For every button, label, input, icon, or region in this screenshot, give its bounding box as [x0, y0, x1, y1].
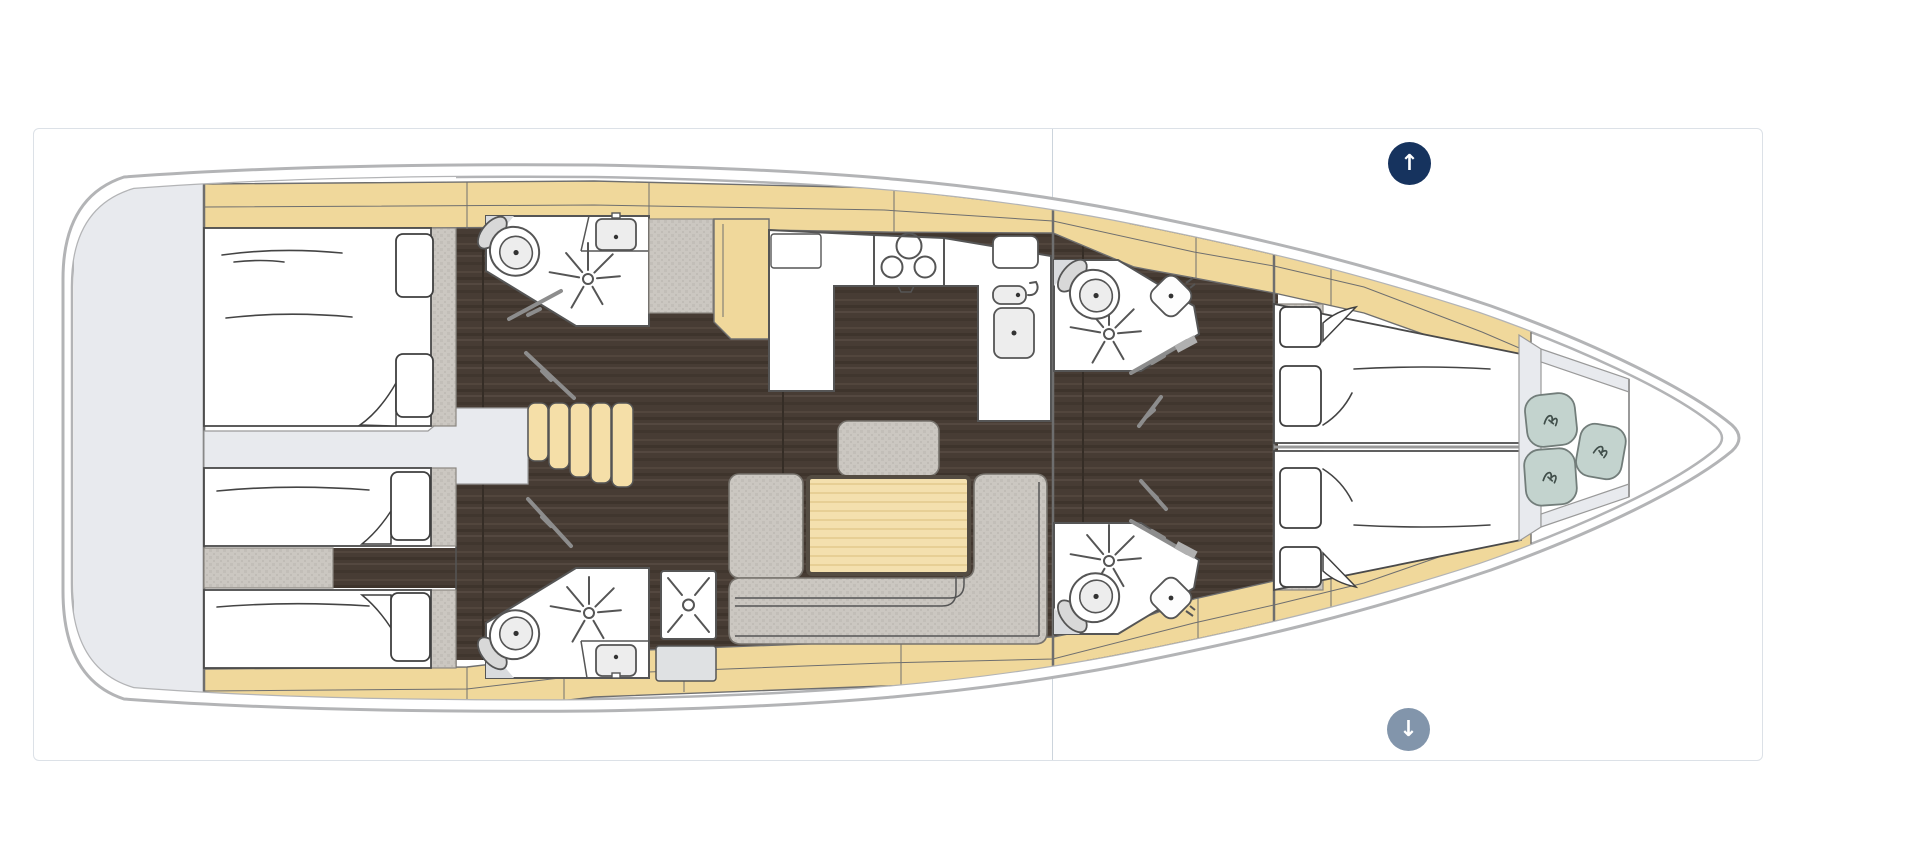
sink-icon — [596, 219, 636, 250]
pillow — [1280, 468, 1321, 528]
pillow — [396, 354, 433, 417]
shower-stall — [656, 571, 716, 681]
aft-cabin-upper — [204, 228, 456, 426]
page: { "window": { "background": "#ffffff" },… — [0, 0, 1920, 858]
pillow — [1280, 307, 1321, 347]
scroll-up-button[interactable]: ↑ — [1388, 142, 1431, 185]
seat-cushion — [1574, 421, 1629, 481]
pillow — [391, 593, 430, 661]
wardrobe — [649, 219, 713, 313]
salon-table — [808, 477, 969, 574]
fridge — [993, 236, 1038, 268]
sink-icon — [596, 645, 636, 676]
pillow — [396, 234, 433, 297]
pillow — [1280, 366, 1321, 426]
pillow — [391, 472, 430, 540]
arrow-down-icon: ↓ — [1399, 719, 1417, 741]
sofa-left-arm — [729, 474, 803, 578]
arrow-up-icon: ↑ — [1400, 153, 1418, 175]
fwd-cabin — [1274, 304, 1521, 590]
sofa-back-cushion — [838, 421, 939, 476]
galley-cabinet — [714, 219, 769, 339]
seat-cushion — [1523, 392, 1578, 449]
seat-cushion — [1523, 447, 1578, 506]
sink-icon — [993, 286, 1026, 304]
yacht-floorplan — [34, 129, 1762, 760]
scroll-down-button[interactable]: ↓ — [1387, 708, 1430, 751]
deck-plan-panel: ↑ ↓ — [33, 128, 1763, 761]
transom-platform — [74, 171, 204, 711]
pillow — [1280, 547, 1321, 587]
